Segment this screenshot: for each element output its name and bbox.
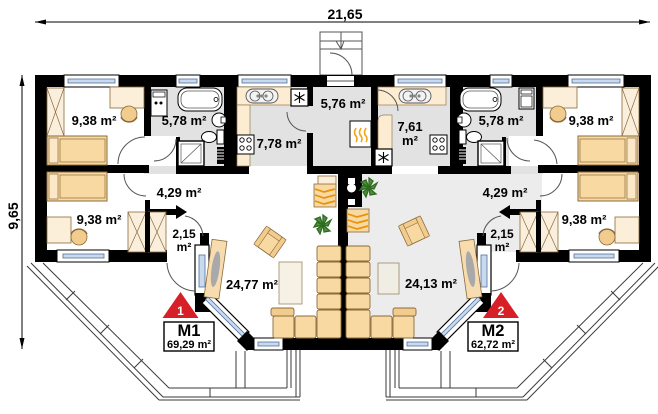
svg-text:5,78 m²: 5,78 m² [479,113,524,128]
svg-text:62,72 m²: 62,72 m² [471,339,515,351]
svg-text:7,78 m²: 7,78 m² [257,136,302,151]
svg-text:M1: M1 [178,322,201,340]
svg-text:9,65: 9,65 [5,202,21,229]
svg-text:4,29 m²: 4,29 m² [483,185,528,200]
svg-text:m²: m² [495,240,510,254]
svg-text:2,15: 2,15 [172,227,196,241]
svg-text:1: 1 [177,304,184,318]
svg-text:21,65: 21,65 [327,6,362,22]
svg-text:m²: m² [402,133,419,148]
svg-text:5,76 m²: 5,76 m² [321,96,366,111]
svg-text:5,78 m²: 5,78 m² [162,113,207,128]
svg-text:2,15: 2,15 [490,227,514,241]
svg-text:9,38 m²: 9,38 m² [569,113,614,128]
svg-text:2: 2 [498,304,505,318]
svg-text:9,38 m²: 9,38 m² [72,113,117,128]
svg-text:24,13 m²: 24,13 m² [405,276,458,291]
svg-text:24,77 m²: 24,77 m² [226,277,279,292]
svg-text:m²: m² [177,240,192,254]
svg-text:9,38 m²: 9,38 m² [562,212,607,227]
svg-text:M2: M2 [482,322,505,340]
svg-text:4,29 m²: 4,29 m² [157,185,202,200]
svg-text:7,61: 7,61 [397,119,422,134]
svg-text:9,38 m²: 9,38 m² [77,212,122,227]
svg-text:69,29 m²: 69,29 m² [167,339,211,351]
